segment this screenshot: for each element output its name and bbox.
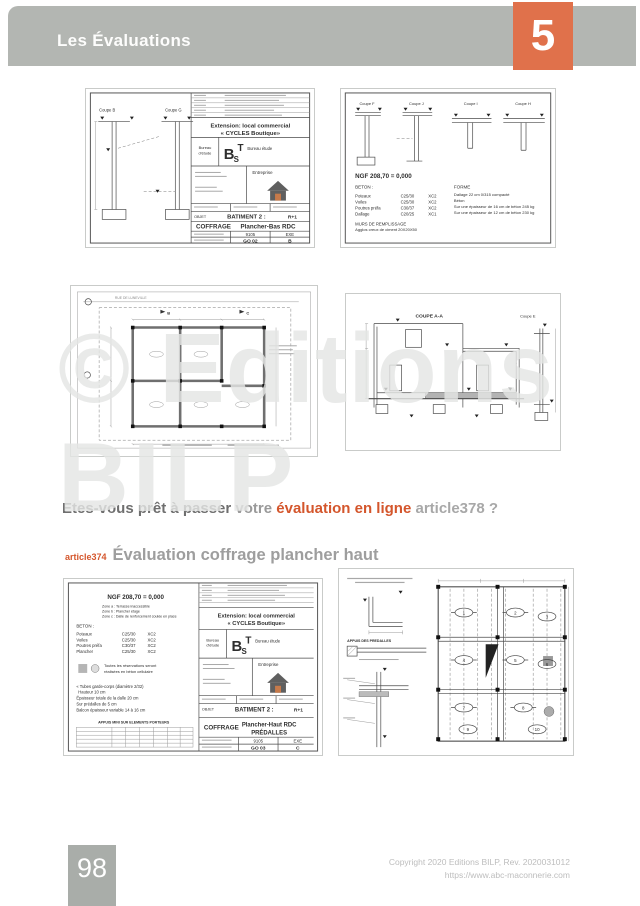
svg-text:C25/30: C25/30 [401, 194, 415, 199]
coupe-label: Coupe B [99, 108, 115, 113]
article378-ref: article378 ? [415, 500, 498, 517]
beton-title: BETON : [355, 185, 373, 190]
svg-text:Dallage: Dallage [355, 211, 370, 216]
svg-text:C: C [246, 311, 249, 316]
svg-text:Sur prédalles de 5 cm: Sur prédalles de 5 cm [76, 702, 117, 707]
objet-label: OBJET [202, 708, 215, 712]
project-title-1: Extension: local commercial [210, 124, 290, 130]
svg-text:XC2: XC2 [148, 637, 157, 642]
article374-ref: article374 [65, 552, 107, 562]
spec-lines: « Tubes garde-corps (diamètre 2/32) Haut… [76, 684, 146, 713]
murs-title: MURS DE REMPLISSAGE [355, 221, 406, 226]
svg-text:C25/30: C25/30 [401, 200, 415, 205]
svg-text:T: T [238, 143, 244, 154]
plan-code: GO 03 [251, 746, 266, 752]
section-heading: article374 Évaluation coffrage plancher … [65, 546, 378, 565]
svg-text:XC1: XC1 [428, 211, 437, 216]
svg-text:9: 9 [467, 727, 470, 732]
batiment-label: BATIMENT 2 : [227, 214, 266, 220]
coupe-label: Coupe H [515, 101, 531, 106]
phase: EXE [286, 232, 295, 237]
svg-text:Poutres préfa: Poutres préfa [76, 643, 102, 648]
svg-text:4: 4 [463, 658, 466, 663]
plan-name-2: PRÉDALLES [251, 729, 287, 737]
chapter-number-box: 5 [513, 2, 573, 70]
drawing-coupes-beton: Coupe F Coupe J Coupe I Coupe H NGF 208,… [340, 88, 556, 248]
svg-text:5: 5 [514, 658, 517, 663]
book-page: Les Évaluations 5 Coupe B Coupe G [0, 0, 640, 906]
project-number: 9105 [246, 232, 256, 237]
bureau-label-2: d'étude [199, 151, 213, 156]
ngf-level: NGF 208,70 = 0,000 [107, 594, 164, 601]
svg-text:réalisées en béton cellulaire: réalisées en béton cellulaire [104, 669, 154, 674]
column-section-coupe-g: Coupe G [118, 108, 193, 220]
svg-text:XC2: XC2 [428, 205, 437, 210]
svg-text:Béton: Béton [454, 198, 465, 203]
section-sketches: Coupe F Coupe J Coupe I Coupe H [355, 101, 545, 165]
svg-text:T: T [245, 635, 251, 646]
page-number-box: 98 [68, 845, 116, 906]
svg-text:d'étude: d'étude [206, 643, 220, 648]
section-mark-b: B [160, 310, 170, 316]
svg-text:Zone a : Terrasse inaccessible: Zone a : Terrasse inaccessible [102, 605, 150, 609]
plan-type: COFFRAGE [196, 224, 231, 231]
svg-text:Voiles: Voiles [355, 200, 366, 205]
svg-text:Poteaux: Poteaux [355, 194, 371, 199]
svg-text:Plancher: Plancher [76, 649, 93, 654]
street-label: RUE DE LUNEVILLE [115, 296, 147, 300]
predalles-plan: 1 2 3 4 5 6 7 8 9 10 [436, 579, 569, 741]
copyright-url: https://www.abc-maconnerie.com [389, 869, 570, 882]
bureau-label-1: Bureau [199, 145, 212, 150]
drawing-coffrage-plancher-haut: NGF 208,70 = 0,000 Zone a : Terrasse ina… [63, 578, 323, 756]
entreprise-label: Entreprise [258, 662, 279, 667]
batiment-label: BATIMENT 2 : [235, 707, 274, 713]
coupe-label: Coupe G [165, 108, 182, 113]
ngf-level: NGF 208,70 = 0,000 [355, 173, 412, 180]
forme-title: FORME [454, 185, 470, 190]
svg-text:B: B [167, 311, 170, 316]
svg-text:C30/37: C30/37 [401, 205, 415, 210]
beton-title: BETON : [76, 623, 94, 628]
project-title-1: Extension: local commercial [218, 614, 296, 620]
drawing-plan-coffrage: RUE DE LUNEVILLE B C [70, 285, 318, 457]
svg-text:Bureau: Bureau [206, 637, 219, 642]
entreprise-label: Entreprise [252, 170, 273, 175]
niveau-label: R+1 [288, 214, 297, 220]
bst-logo: B S T [224, 143, 244, 164]
coupe-aa-label: COUPE A-A [415, 314, 443, 320]
bureau-name: Bureau étude [247, 146, 272, 151]
evaluation-question-line: Etes-vous prêt à passer votre évaluation… [62, 500, 498, 517]
title-block: Extension: local commercial « CYCLES Bou… [199, 583, 314, 752]
indice: B [288, 238, 292, 244]
svg-text:C25/30: C25/30 [122, 649, 136, 654]
svg-text:7: 7 [463, 705, 466, 710]
svg-text:Zone c : Dalle de renforcement: Zone c : Dalle de renforcement coulée en… [102, 615, 177, 619]
svg-text:2: 2 [514, 610, 517, 615]
chapter-title: Les Évaluations [57, 31, 191, 51]
svg-text:Poutres préfa: Poutres préfa [355, 205, 381, 210]
coupe-label: Coupe J [409, 101, 424, 106]
column-section-coupe-b: Coupe B [94, 108, 133, 220]
svg-text:XC2: XC2 [148, 631, 157, 636]
title-block: Extension: local commercial « CYCLES Bou… [191, 93, 309, 244]
appuis-table-title: APPUIS MINI SUR ELEMENTS PORTEURS [98, 720, 170, 724]
svg-text:Épaisseur totale de la dalle 2: Épaisseur totale de la dalle 20 cm [76, 696, 139, 701]
drawing-coupe-aa: COUPE A-A Coupe E [345, 293, 561, 451]
svg-text:8: 8 [522, 705, 525, 710]
bilp-house-icon [267, 673, 289, 693]
indice: C [296, 746, 300, 752]
svg-text:3: 3 [546, 614, 549, 619]
plan-walls [131, 326, 266, 428]
appuis-detail-title: APPUIS DES PREDALLES [347, 639, 392, 643]
svg-text:Zone b : Plancher étage: Zone b : Plancher étage [102, 610, 140, 614]
zone-legend: Zone a : Terrasse inaccessible Zone b : … [102, 605, 177, 619]
svg-text:C20/25: C20/25 [401, 211, 415, 216]
svg-text:Sur une épaisseur de 12 cm de: Sur une épaisseur de 12 cm de béton 230 … [454, 210, 534, 215]
question-part-2: votre [235, 500, 272, 517]
section-title: Évaluation coffrage plancher haut [113, 546, 379, 565]
svg-text:Toutes les réservations seront: Toutes les réservations seront [104, 663, 157, 668]
niveau-label: R+1 [294, 707, 303, 713]
coupe-e-label: Coupe E [520, 314, 536, 319]
svg-text:Sur une épaisseur de 16 cm de: Sur une épaisseur de 16 cm de béton 245 … [454, 204, 534, 209]
bilp-house-icon [267, 181, 289, 201]
svg-text:XC2: XC2 [428, 194, 437, 199]
section-mark-c: C [239, 310, 249, 316]
project-title-2: « CYCLES Boutique» [228, 621, 286, 627]
svg-text:XC2: XC2 [148, 643, 157, 648]
svg-text:« Tubes garde-corps (diamètre: « Tubes garde-corps (diamètre 2/32) [76, 684, 144, 689]
svg-text:XC2: XC2 [148, 649, 157, 654]
svg-text:10: 10 [535, 727, 540, 732]
svg-text:C25/30: C25/30 [122, 637, 136, 642]
plan-code: GO 02 [243, 238, 258, 244]
beton-table: PoteauxC25/30XC2 VoilesC25/30XC2 Poutres… [76, 631, 156, 654]
svg-text:C30/37: C30/37 [122, 643, 136, 648]
svg-text:Hauteur 10 cm: Hauteur 10 cm [78, 690, 106, 695]
note-block [269, 345, 297, 354]
page-number: 98 [77, 853, 107, 906]
beton-table: PoteauxC25/30XC2 VoilesC25/30XC2 Poutres… [355, 194, 437, 217]
plan-type: COFFRAGE [204, 724, 239, 731]
copyright-line: Copyright 2020 Editions BILP, Rev. 20200… [389, 856, 570, 869]
reservation-note: Toutes les réservations seront réalisées… [78, 663, 157, 674]
svg-text:S: S [234, 155, 239, 164]
murs-text: Agglos creux de ciment 20X20X50 [355, 227, 418, 232]
svg-text:Balcon épaisseur variable 14 à: Balcon épaisseur variable 14 à 16 cm [76, 707, 146, 712]
building-section [365, 319, 524, 418]
bureau-name: Bureau étude [255, 638, 281, 643]
phase: EXE [294, 739, 303, 744]
chapter-number: 5 [531, 14, 555, 58]
copyright-block: Copyright 2020 Editions BILP, Rev. 20200… [389, 856, 570, 882]
question-part-1: Etes-vous prêt à passer [62, 500, 231, 517]
appuis-table [76, 727, 193, 747]
svg-text:C25/30: C25/30 [122, 631, 136, 636]
objet-label: OBJET [194, 215, 207, 219]
coupe-label: Coupe I [464, 101, 478, 106]
evaluation-en-ligne-ref: évaluation en ligne [276, 500, 411, 517]
project-number: 9105 [254, 739, 264, 744]
detail-sketches: APPUIS DES PREDALLES [343, 578, 426, 747]
svg-text:Voiles: Voiles [76, 637, 87, 642]
coupe-label: Coupe F [359, 101, 375, 106]
plan-name: Plancher-Bas RDC [240, 224, 295, 231]
svg-text:Poteaux: Poteaux [76, 631, 92, 636]
coupe-e-section [534, 324, 556, 421]
svg-text:XC2: XC2 [428, 200, 437, 205]
drawing-plan-predalles: APPUIS DES PREDALLES [338, 568, 574, 756]
svg-text:S: S [241, 647, 246, 656]
svg-text:Dallage 22 cm 0/315 compacté: Dallage 22 cm 0/315 compacté [454, 192, 510, 197]
plan-name-1: Plancher-Haut RDC [242, 722, 297, 728]
bst-logo: B S T [232, 635, 252, 656]
svg-text:1: 1 [463, 610, 466, 615]
forme-lines: Dallage 22 cm 0/315 compacté Béton Sur u… [454, 192, 534, 215]
drawing-coffrage-plancher-bas: Coupe B Coupe G [85, 88, 315, 248]
project-title-2: « CYCLES Boutique» [221, 131, 281, 137]
